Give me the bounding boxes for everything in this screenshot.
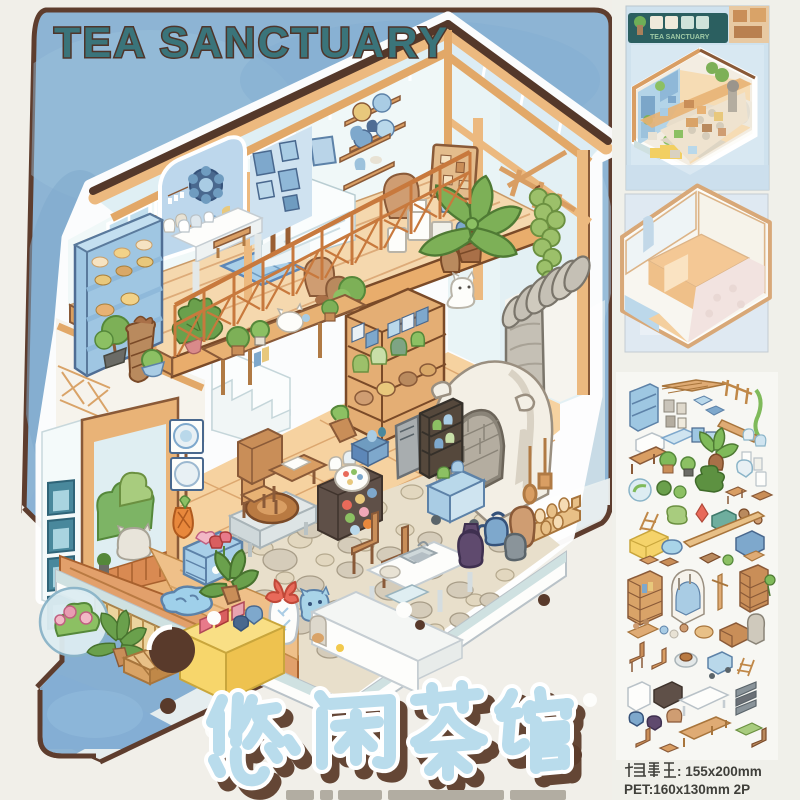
svg-text:TEA SANCTUARY: TEA SANCTUARY <box>54 19 447 67</box>
svg-text:PET:160x130mm 2P: PET:160x130mm 2P <box>624 782 750 797</box>
svg-text:: 155x200mm: : 155x200mm <box>677 764 762 779</box>
svg-text:TEA SANCTUARY: TEA SANCTUARY <box>650 34 710 41</box>
